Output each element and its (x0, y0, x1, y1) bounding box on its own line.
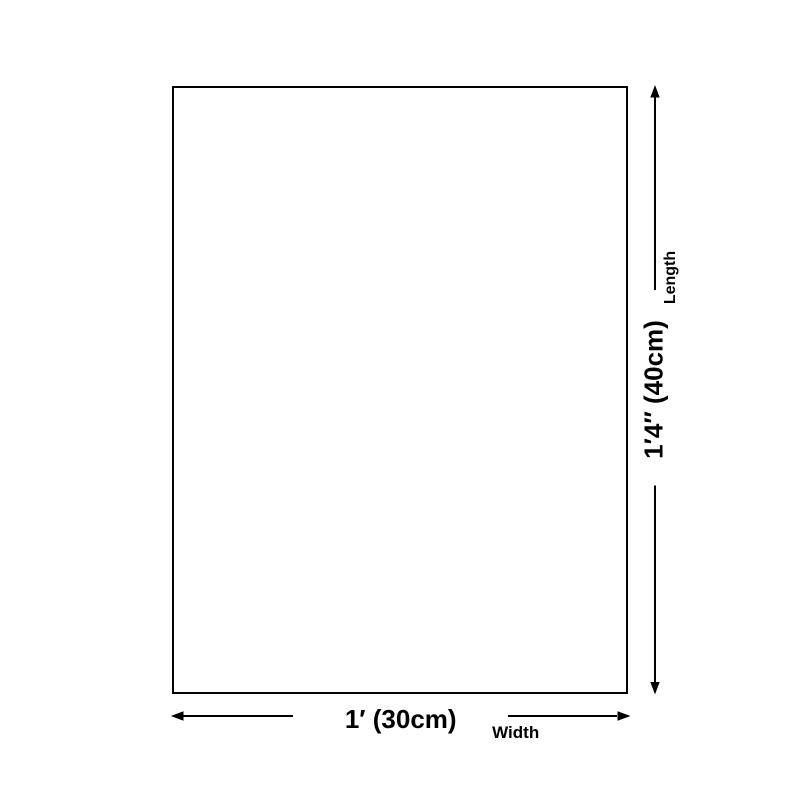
svg-text:1′ (30cm): 1′ (30cm) (345, 704, 457, 734)
svg-text:1′4″ (40cm): 1′4″ (40cm) (639, 320, 669, 459)
svg-text:Width: Width (492, 723, 539, 742)
svg-text:Length: Length (662, 251, 679, 304)
